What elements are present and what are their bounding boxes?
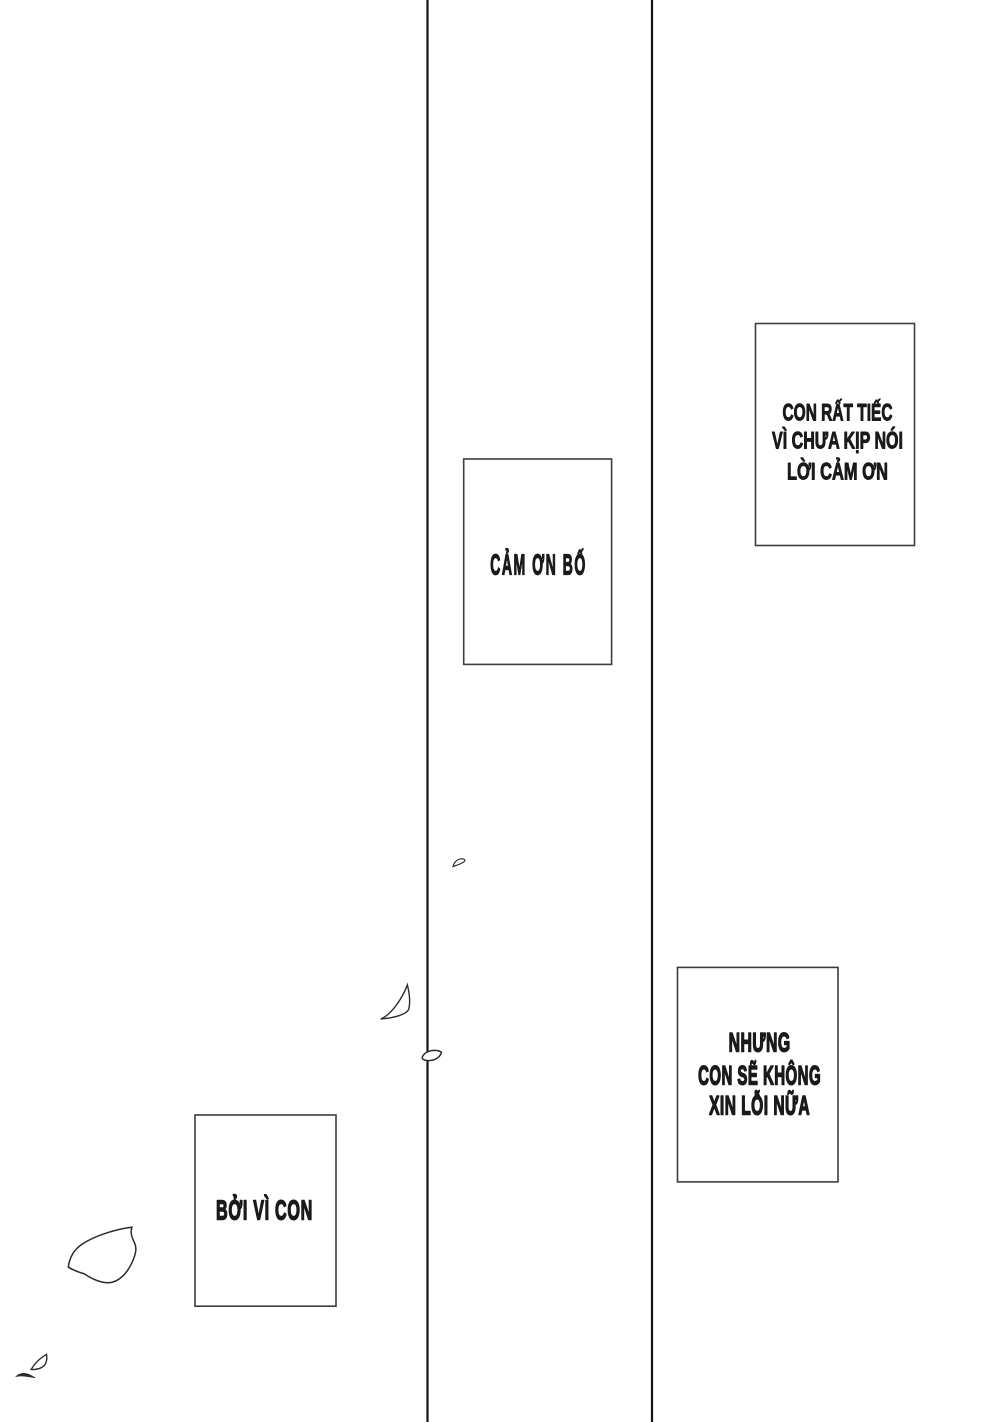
svg-text:CON RẤT TIẾC: CON RẤT TIẾC bbox=[783, 399, 893, 427]
svg-text:LỜI CẢM ƠN: LỜI CẢM ƠN bbox=[787, 457, 888, 486]
svg-text:CON SẼ KHÔNG: CON SẼ KHÔNG bbox=[698, 1060, 821, 1090]
svg-text:CẢM ƠN BỐ: CẢM ƠN BỐ bbox=[490, 548, 587, 582]
svg-text:BỞI VÌ CON: BỞI VÌ CON bbox=[216, 1194, 313, 1226]
svg-text:NHƯNG: NHƯNG bbox=[729, 1028, 791, 1058]
svg-text:VÌ CHƯA KỊP NÓI: VÌ CHƯA KỊP NÓI bbox=[772, 427, 903, 455]
svg-text:XIN LỖI NỮA: XIN LỖI NỮA bbox=[709, 1091, 810, 1121]
